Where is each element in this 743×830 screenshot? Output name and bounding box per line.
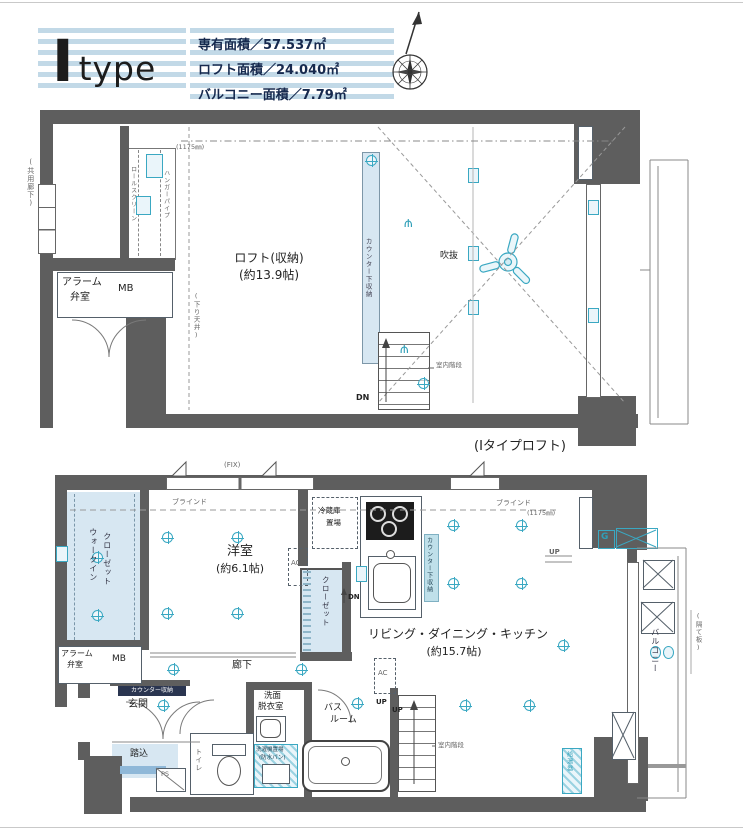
- closet-label: クローゼット: [321, 576, 329, 650]
- bathroom-label-1: バス: [324, 704, 342, 714]
- upper-room-wall-bottom: [53, 258, 175, 271]
- lower-stairs-note: 室内階段: [438, 742, 464, 749]
- balcony-wall-seg: [627, 548, 637, 562]
- upper-dim-note: (1175㎜): [176, 144, 204, 151]
- ps-label: PS: [161, 771, 169, 778]
- wic-label-2: クローゼット: [102, 532, 111, 620]
- light-icon: [448, 578, 459, 589]
- water-tap-icon: [356, 566, 367, 582]
- waterproof-pan-label: (防水パン): [259, 755, 286, 761]
- wic-hanger-dash: [74, 494, 75, 640]
- wic-wall-right: [140, 490, 149, 648]
- type-logo: I type: [38, 28, 186, 94]
- drain-icon: [341, 757, 350, 766]
- upper-stairs-note: 室内階段: [436, 362, 462, 369]
- ldk-size: (約15.7帖): [410, 646, 498, 658]
- bedroom-name: 洋室: [193, 545, 287, 559]
- logo-word: type: [79, 49, 157, 88]
- light-icon: [558, 640, 569, 651]
- upper-wall-left-b: [40, 250, 53, 428]
- bathroom-wall-right: [390, 688, 398, 797]
- washroom-wall-top: [246, 682, 312, 690]
- window-clip: [588, 308, 599, 323]
- entrance-label: 玄関: [128, 699, 148, 710]
- blind-label-right: ブラインド: [496, 500, 531, 508]
- upper-roll-screen-label: ロールスクリーン: [129, 166, 136, 252]
- ac-label: AC: [291, 560, 301, 568]
- upper-alarm-label-2: 弁室: [70, 292, 90, 303]
- wic-hanger-dash: [134, 494, 135, 640]
- window-clip: [468, 300, 479, 315]
- upper-wall-top: [40, 110, 640, 124]
- lower-top-window-right: [450, 477, 500, 490]
- light-icon: [366, 155, 377, 166]
- upper-wall-left-a: [40, 110, 53, 186]
- logo-letter: I: [52, 35, 74, 87]
- upper-corridor-side-label: (共用廊下): [26, 158, 34, 248]
- bedroom-size: (約6.1帖): [190, 563, 290, 575]
- burner: [370, 506, 386, 522]
- water-heater-label: 給湯器: [565, 751, 572, 791]
- light-icon: [168, 664, 179, 675]
- light-icon: [296, 664, 307, 675]
- fridge-label-2: 置場: [326, 519, 341, 527]
- sprinkler-icon: Ψ: [400, 342, 409, 354]
- entrance-wall-left-a: [78, 682, 90, 698]
- window-clip: [56, 546, 68, 562]
- balcony-area: バルコニー面積／7.79㎡: [198, 81, 394, 106]
- closet-hatch: [303, 571, 311, 651]
- upper-right-glass-wall: [586, 184, 601, 398]
- light-icon: [448, 520, 459, 531]
- blind-label-left: ブラインド: [172, 499, 207, 507]
- faucet-icon: [386, 550, 395, 559]
- entrance-counter-label: カウンター収納: [131, 688, 173, 695]
- window-clip: [588, 200, 599, 215]
- gas-meter-label: G: [601, 533, 608, 543]
- ldk-name: リビング・ダイニング・キッチン: [368, 628, 540, 641]
- loft-area: ロフト面積／24.040㎡: [198, 56, 394, 81]
- lower-dim-note: (1175㎜): [527, 510, 555, 517]
- window-clip: [468, 168, 479, 183]
- washroom-label-1: 洗面: [264, 692, 281, 701]
- area-info-box: 専有面積／57.537㎡ ロフト面積／24.040㎡ バルコニー面積／7.79㎡: [190, 28, 394, 104]
- washer-label: 洗濯機置場: [256, 747, 284, 753]
- drain-icon: [663, 646, 674, 659]
- upper-counter-storage-label: カウンター下収納: [364, 238, 371, 338]
- washer-pan-inner: [262, 764, 290, 784]
- fridge-label-1: 冷蔵庫: [318, 507, 341, 515]
- upper-wall-bottom: [126, 414, 638, 428]
- scan-edge-top: [0, 2, 743, 3]
- lower-alarm-label-1: アラーム: [61, 650, 93, 659]
- stairs-up-label-2: UP: [392, 707, 403, 715]
- wic-label-1: ウォークイン: [88, 528, 97, 612]
- ac-label-2: AC: [378, 670, 388, 678]
- upper-pipe-space: [578, 126, 593, 180]
- light-icon: [162, 608, 173, 619]
- light-icon: [516, 578, 527, 589]
- loft-room-name: ロフト(収納): [213, 252, 325, 265]
- sprinkler-icon: Ψ: [404, 216, 413, 228]
- window-clip: [468, 246, 479, 261]
- upper-lowered-ceiling-label: (下り天井): [192, 292, 199, 356]
- partition-board-label: (隔て板): [694, 612, 701, 676]
- washroom-label-2: 脱衣室: [258, 703, 284, 712]
- lower-stairs: [398, 695, 436, 792]
- exclusive-area: 専有面積／57.537㎡: [198, 31, 394, 56]
- light-icon: [162, 532, 173, 543]
- closet-wall-bottom: [300, 652, 352, 661]
- closet-wall-right: [342, 562, 351, 658]
- outdoor-unit-tall: [612, 712, 636, 760]
- lower-top-window-left: [166, 477, 314, 490]
- light-icon: [158, 700, 169, 711]
- light-icon: [232, 532, 243, 543]
- light-icon: [516, 520, 527, 531]
- loft-room-size: (約13.9帖): [213, 269, 325, 282]
- stairs-up-label-1: UP: [376, 699, 387, 707]
- upper-left-window: [38, 184, 56, 254]
- kitchen-counter-storage-label: カウンター下収納: [425, 537, 432, 597]
- upper-alarm-label-1: アラーム: [62, 277, 102, 288]
- upper-hanger-pipe-label: ハンガーパイプ: [162, 170, 169, 254]
- lower-pipe-space: [579, 497, 593, 549]
- hallway-label: 廊下: [232, 660, 252, 671]
- light-icon: [418, 378, 429, 389]
- gas-meter-hatch: [616, 528, 658, 549]
- burner: [392, 506, 408, 522]
- void-label: 吹抜: [440, 252, 458, 262]
- balcony-up-label: UP: [549, 549, 560, 557]
- outdoor-unit: [643, 560, 675, 590]
- upper-plan-caption: (Iタイプロフト): [452, 440, 588, 454]
- fix-window-label: (FIX): [224, 462, 240, 470]
- step-in-label: 踏込: [130, 750, 148, 760]
- upper-wall-left-step: [126, 318, 166, 414]
- toilet-label: トイレ: [194, 748, 202, 786]
- lower-wall-top: [55, 475, 647, 490]
- bathroom-label-2: ルーム: [330, 716, 357, 726]
- washbasin-bowl: [260, 719, 281, 738]
- upper-wall-bottomright-block: [578, 396, 636, 446]
- light-icon: [524, 700, 535, 711]
- upper-room-wall-right: [120, 126, 129, 262]
- light-icon: [460, 700, 471, 711]
- upper-mb-label: MB: [118, 283, 134, 294]
- scan-edge-bottom: [0, 827, 743, 828]
- ceiling-fan-icon: [476, 230, 540, 294]
- upper-closet-teal-box-2: [136, 196, 151, 215]
- upper-dn-label: DN: [356, 394, 369, 403]
- balcony-wall-seg: [627, 782, 637, 798]
- lower-wall-bottomleft-block: [84, 756, 122, 814]
- balcony-label: バルコニー: [650, 628, 659, 714]
- upper-balcony-railing: [640, 160, 688, 424]
- lower-dn-label: DN: [348, 594, 360, 602]
- toilet-bowl: [217, 756, 241, 786]
- floorplan-page: I type 専有面積／57.537㎡ ロフト面積／24.040㎡ バルコニー面…: [0, 0, 743, 830]
- lower-mb-label: MB: [112, 655, 126, 665]
- burner: [381, 521, 397, 537]
- light-icon: [232, 608, 243, 619]
- shower-icon: [352, 698, 363, 709]
- compass-icon: [383, 8, 441, 98]
- lower-wall-bottom: [130, 797, 646, 812]
- entrance-counter-strip: カウンター収納: [118, 686, 186, 696]
- toilet-tank: [212, 744, 246, 756]
- sink-basin: [373, 563, 411, 603]
- washroom-wall-left: [246, 682, 254, 734]
- window-flag-triangles: [172, 462, 484, 476]
- upper-closet-teal-box-1: [146, 154, 163, 178]
- lower-alarm-label-2: 弁室: [67, 661, 83, 670]
